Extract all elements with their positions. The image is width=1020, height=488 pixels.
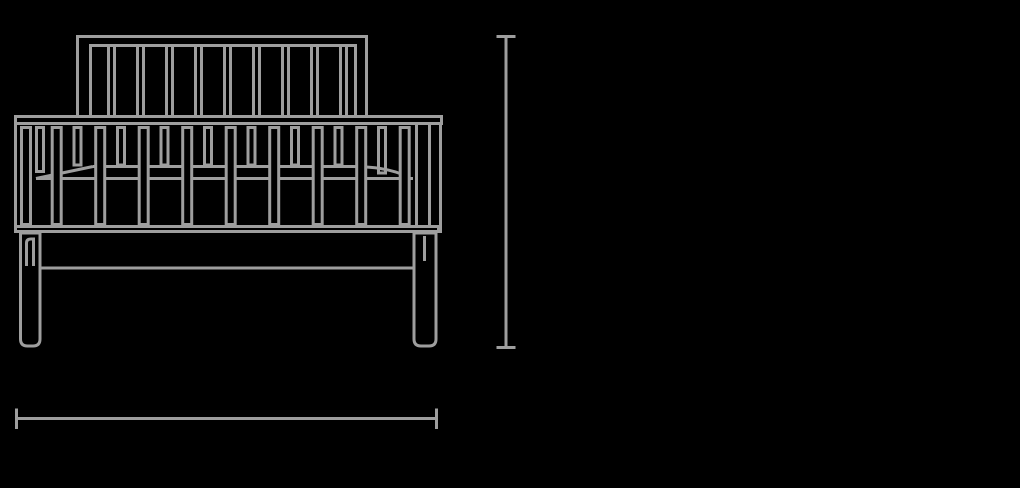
canvas	[0, 0, 1020, 488]
side-back-slat	[74, 128, 81, 166]
left-leg	[21, 233, 41, 346]
side-back-slat	[37, 128, 44, 172]
crib-dimension-diagram	[0, 0, 1020, 488]
side-front-slat	[183, 128, 192, 225]
side-front-slat	[270, 128, 279, 225]
side-back-slat	[379, 128, 386, 174]
side-front-slat	[139, 128, 148, 225]
side-front-slat	[96, 128, 105, 225]
side-back-slat	[205, 128, 212, 166]
side-back-slat	[248, 128, 255, 166]
side-back-slat	[161, 128, 168, 166]
side-bottom-rail	[16, 227, 439, 232]
side-back-slat	[118, 128, 125, 166]
side-back-slat	[292, 128, 299, 166]
background	[0, 0, 1020, 488]
side-front-slat	[52, 128, 61, 225]
side-front-slat	[313, 128, 322, 225]
side-front-slat	[357, 128, 366, 225]
side-front-slat	[22, 128, 31, 225]
side-front-slat	[226, 128, 235, 225]
side-top-rail	[16, 117, 442, 124]
side-front-slat	[400, 128, 409, 225]
side-back-slat	[335, 128, 342, 166]
